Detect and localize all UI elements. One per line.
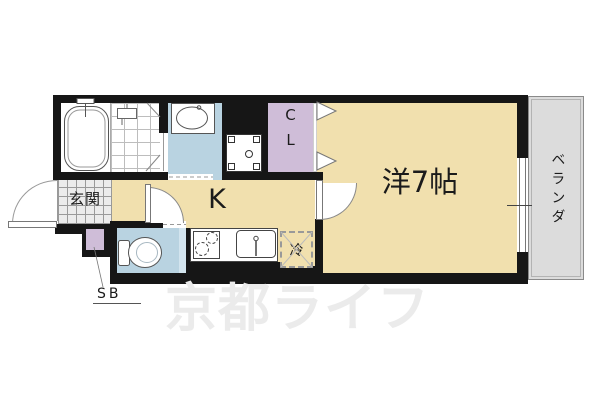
wall-bath-right (159, 95, 168, 133)
washbasin-doorway (168, 174, 213, 180)
closet-label: CL (282, 106, 299, 156)
wall-bath-bottom (53, 172, 168, 180)
wall-entrance-bottom (55, 224, 85, 234)
entrance-door-leaf (8, 221, 57, 228)
shoe-box-icon (86, 229, 104, 250)
refrigerator-space-icon: 冷 (280, 231, 313, 268)
wall-top (53, 95, 528, 103)
shoebox-label: SB (97, 287, 122, 302)
watermark-text: 京都ライフ (165, 266, 430, 341)
washbasin-area-floor (168, 103, 222, 180)
wall-utility-divider (222, 95, 268, 180)
wall-closet-bottom (262, 172, 323, 180)
entrance-door-swing-icon (12, 180, 57, 224)
floorplan-canvas: 冷 (0, 0, 600, 400)
room-label: 洋7帖 (350, 167, 490, 199)
bathroom-tile-floor (110, 103, 160, 172)
kitchen-door-leaf (145, 184, 151, 223)
entrance-label: 玄関 (58, 191, 112, 208)
kitchen-label: K (198, 185, 236, 215)
wall-bath-left (53, 95, 61, 180)
wall-toilet-left (110, 221, 117, 278)
balcony-window-icon (517, 158, 528, 252)
veranda-label: ベランダ (549, 152, 564, 228)
closet-door-track (313, 103, 317, 172)
fridge-label: 冷 (290, 240, 304, 260)
kitchen-counter (190, 228, 278, 262)
wall-right-top (517, 95, 528, 158)
room-door-leaf (316, 180, 323, 220)
